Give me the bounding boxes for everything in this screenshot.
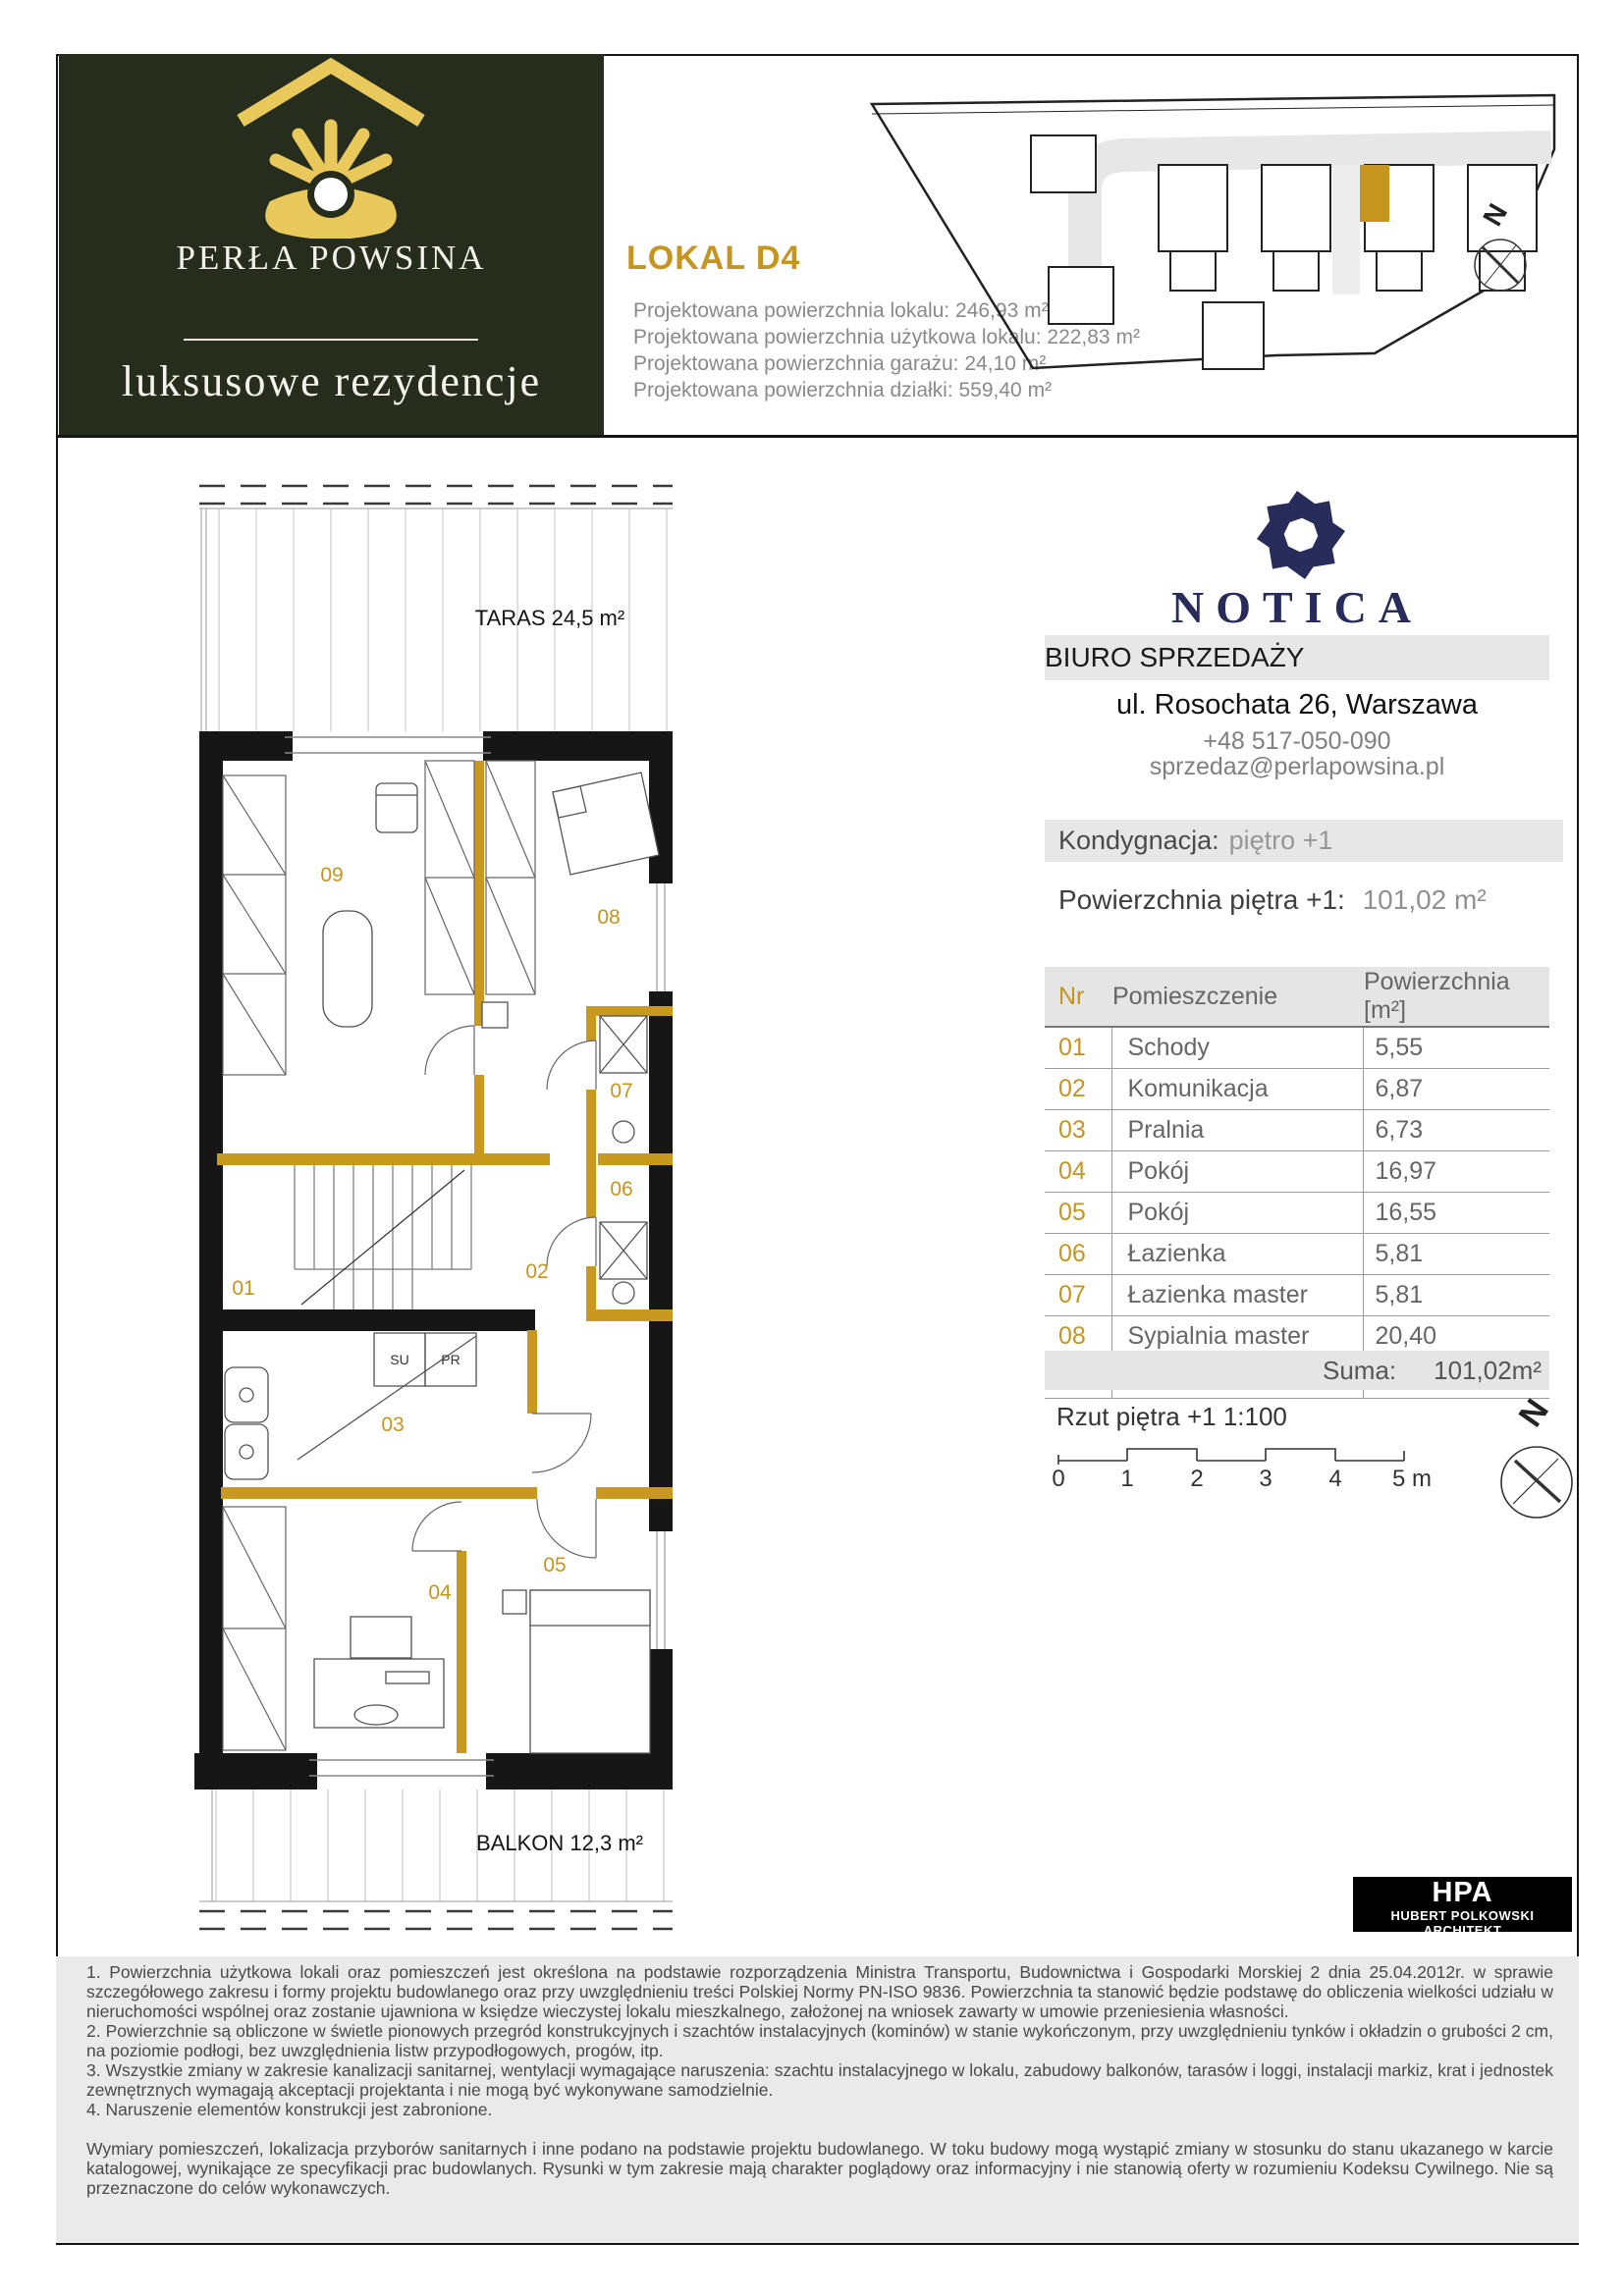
brand-box: PERŁA POWSINA luksusowe rezydencje — [59, 54, 604, 435]
notica-wordmark: NOTICA — [1045, 581, 1549, 633]
site-plan: N — [864, 59, 1591, 373]
col-header-nr: Nr — [1045, 967, 1111, 1027]
table-header-row: Nr Pomieszczenie Powierzchnia [m²] — [1045, 967, 1549, 1027]
scale-tick: 1 — [1120, 1466, 1133, 1492]
cell-nr: 06 — [1045, 1234, 1111, 1275]
north-compass-icon: N — [1483, 1394, 1591, 1531]
scale-tick: 0 — [1052, 1466, 1064, 1492]
fixtures — [225, 1016, 647, 1479]
cell-nr: 02 — [1045, 1069, 1111, 1110]
col-header-area: Powierzchnia [m²] — [1363, 967, 1549, 1027]
cell-area: 6,73 — [1363, 1110, 1549, 1151]
sales-office-band-label: BIURO SPRZEDAŻY — [1045, 642, 1549, 673]
sum-label: Suma: — [1323, 1356, 1396, 1386]
room-label-09: 09 — [320, 864, 343, 887]
table-row: 06Łazienka5,81 — [1045, 1234, 1549, 1275]
north-label: N — [1512, 1394, 1556, 1433]
cell-name: Pokój — [1111, 1151, 1363, 1193]
sales-office-band: BIURO SPRZEDAŻY — [1045, 635, 1549, 680]
door-swings — [412, 1026, 596, 1558]
floor-area-label: Powierzchnia piętra +1: — [1058, 884, 1345, 915]
cell-name: Pokój — [1111, 1193, 1363, 1234]
table-sum-row: Suma: 101,02m² — [1045, 1351, 1549, 1390]
architect-name: HUBERT POLKOWSKI ARCHITEKT — [1353, 1908, 1572, 1938]
sales-phone: +48 517-050-090 — [1045, 727, 1549, 756]
floor-area-value: 101,02 m² — [1363, 884, 1487, 915]
floor-area-line: Powierzchnia piętra +1: 101,02 m² — [1058, 884, 1487, 916]
spec-line: Projektowana powierzchnia działki: 559,4… — [633, 377, 1140, 403]
unit-title: LOKAL D4 — [626, 240, 800, 278]
stairs — [295, 1165, 471, 1309]
architect-logo: HPA HUBERT POLKOWSKI ARCHITEKT — [1353, 1877, 1572, 1932]
storey-band: Kondygnacja: piętro +1 — [1045, 820, 1563, 862]
floor-plan — [123, 447, 677, 1958]
cell-nr: 04 — [1045, 1151, 1111, 1193]
cell-area: 16,97 — [1363, 1151, 1549, 1193]
architect-abbr: HPA — [1353, 1877, 1572, 1908]
cell-nr: 03 — [1045, 1110, 1111, 1151]
room-label-04: 04 — [428, 1581, 451, 1605]
cell-area: 5,81 — [1363, 1234, 1549, 1275]
cell-area: 16,55 — [1363, 1193, 1549, 1234]
scale-tick: 2 — [1190, 1466, 1203, 1492]
room-label-02: 02 — [525, 1260, 548, 1284]
legal-clause: 4. Naruszenie elementów konstrukcji jest… — [86, 2100, 1553, 2119]
cell-name: Łazienka master — [1111, 1275, 1363, 1316]
table-row: 04Pokój16,97 — [1045, 1151, 1549, 1193]
room-label-06: 06 — [610, 1178, 632, 1201]
rooms-table: Nr Pomieszczenie Powierzchnia [m²] 01Sch… — [1045, 967, 1549, 1399]
sales-email: sprzedaz@perlapowsina.pl — [1045, 753, 1549, 781]
legal-clause: 2. Powierzchnie są obliczone w świetle p… — [86, 2021, 1553, 2060]
wardrobes — [223, 761, 535, 1750]
legal-section: 1. Powierzchnia użytkowa lokali oraz pom… — [56, 1956, 1579, 2243]
scale-bar: 0 1 2 3 4 5 m — [1051, 1435, 1463, 1498]
room-label-08: 08 — [597, 906, 620, 930]
cell-area: 6,87 — [1363, 1069, 1549, 1110]
brand-title: PERŁA POWSINA — [59, 239, 604, 278]
terrace-label: TARAS 24,5 m² — [475, 606, 624, 631]
room-label-05: 05 — [543, 1554, 566, 1577]
room-label-01: 01 — [232, 1277, 254, 1301]
legal-footer: Wymiary pomieszczeń, lokalizacja przybor… — [86, 2139, 1553, 2198]
cell-name: Pralnia — [1111, 1110, 1363, 1151]
plan-caption: Rzut piętra +1 1:100 — [1056, 1402, 1287, 1432]
cell-name: Schody — [1111, 1027, 1363, 1069]
sales-address: ul. Rosochata 26, Warszawa — [1045, 689, 1549, 721]
balcony-label: BALKON 12,3 m² — [476, 1831, 643, 1856]
roof-overhang-lines — [199, 486, 673, 504]
sum-value: 101,02m² — [1434, 1356, 1542, 1386]
table-row: 02Komunikacja6,87 — [1045, 1069, 1549, 1110]
scale-tick: 3 — [1259, 1466, 1272, 1492]
room-label-07: 07 — [610, 1080, 632, 1103]
col-header-name: Pomieszczenie — [1111, 967, 1363, 1027]
cell-nr: 07 — [1045, 1275, 1111, 1316]
brand-subtitle: luksusowe rezydencje — [59, 356, 604, 406]
legal-clause: 1. Powierzchnia użytkowa lokali oraz pom… — [86, 1962, 1553, 2021]
cell-nr: 01 — [1045, 1027, 1111, 1069]
table-row: 03Pralnia6,73 — [1045, 1110, 1549, 1151]
scale-tick: 4 — [1328, 1466, 1341, 1492]
cell-nr: 05 — [1045, 1193, 1111, 1234]
cell-name: Łazienka — [1111, 1234, 1363, 1275]
table-row: 05Pokój16,55 — [1045, 1193, 1549, 1234]
brand-logo-icon — [59, 54, 604, 239]
cell-name: Komunikacja — [1111, 1069, 1363, 1110]
header-divider — [56, 435, 1579, 438]
room-label-03: 03 — [381, 1414, 404, 1437]
storey-value: piętro +1 — [1229, 826, 1333, 856]
dryer-label: PR — [441, 1352, 460, 1367]
cell-area: 5,81 — [1363, 1275, 1549, 1316]
scale-tick-last: 5 m — [1392, 1466, 1432, 1492]
cell-area: 5,55 — [1363, 1027, 1549, 1069]
roof-overhang-lines-bottom — [199, 1911, 673, 1929]
storey-label: Kondygnacja: — [1058, 826, 1219, 856]
notica-logo-icon — [1255, 489, 1347, 581]
brand-rule — [184, 339, 478, 341]
table-row: 07Łazienka master5,81 — [1045, 1275, 1549, 1316]
table-row: 01Schody5,55 — [1045, 1027, 1549, 1069]
highlighted-unit — [1360, 165, 1389, 222]
legal-clause: 3. Wszystkie zmiany w zakresie kanalizac… — [86, 2060, 1553, 2100]
washer-label: SU — [390, 1352, 408, 1367]
